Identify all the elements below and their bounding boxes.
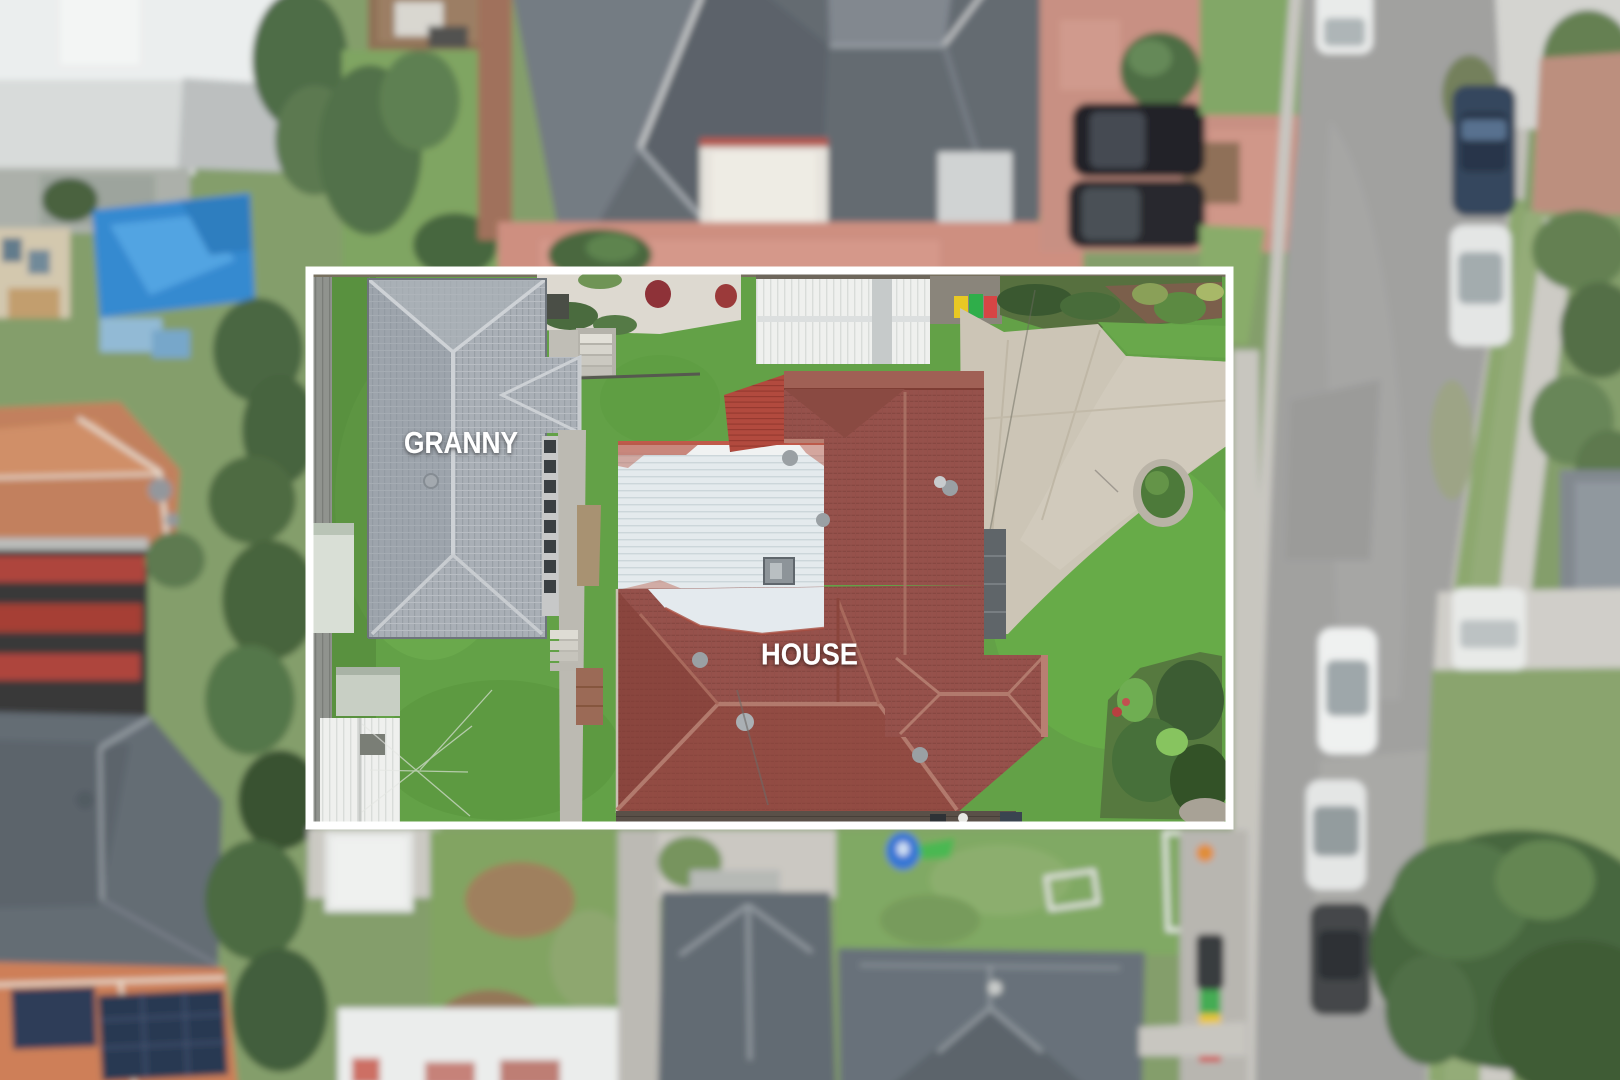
svg-text:HOUSE: HOUSE [761, 638, 858, 672]
svg-text:GRANNY: GRANNY [404, 426, 518, 460]
